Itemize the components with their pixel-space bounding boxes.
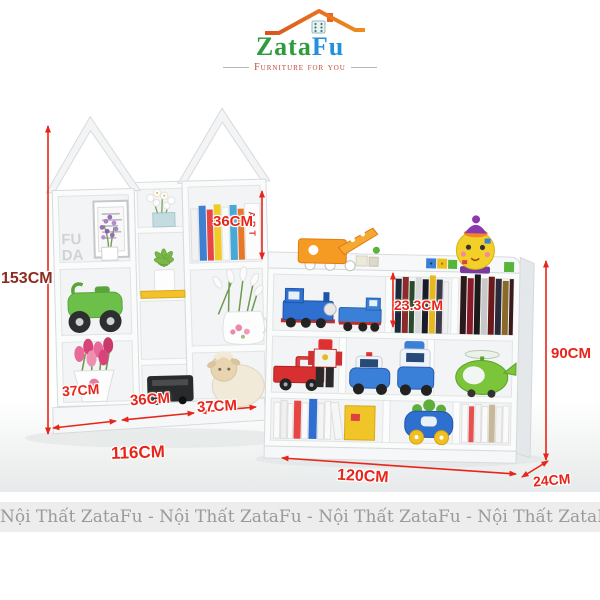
dim-middle-column-width: 36CM: [129, 390, 170, 410]
dim-top-shelf-height: 36CM: [213, 213, 253, 230]
product-image: FU DA: [0, 0, 600, 600]
tagline-text: Furniture for you: [254, 62, 346, 73]
dim-right-unit-depth: 24CM: [532, 470, 571, 489]
dim-right-unit-height: 90CM: [551, 345, 591, 362]
right-unit: [264, 211, 535, 464]
dim-cubby-height: 23.3CM: [394, 297, 443, 313]
brand-tagline: Furniture for you: [0, 62, 600, 73]
decor-letters-bottom: DA: [62, 247, 84, 265]
brand-fu: Fu: [312, 32, 344, 61]
tagline-dash-right: [351, 67, 377, 68]
logo-house-roof-icon: [265, 6, 365, 36]
footer-watermark: Nội Thất ZataFu - Nội Thất ZataFu - Nội …: [0, 502, 600, 532]
dim-left-column-width: 37CM: [61, 381, 99, 400]
decor-letters-top: FU: [61, 231, 81, 249]
logo-window-icon: [312, 21, 325, 33]
dim-left-unit-width: 116CM: [111, 442, 166, 464]
logo: ZataFu Furniture for you: [0, 6, 600, 73]
dim-total-height: 153CM: [1, 270, 53, 288]
dim-right-unit-width: 120CM: [337, 467, 389, 488]
brand-zata: Zata: [256, 32, 312, 61]
book-spines-top-right: [460, 274, 514, 335]
brand-name: ZataFu: [0, 34, 600, 60]
tagline-dash-left: [223, 67, 249, 68]
dim-right-column-width: 37CM: [197, 397, 238, 416]
children-book-spines: ART: [191, 203, 261, 261]
